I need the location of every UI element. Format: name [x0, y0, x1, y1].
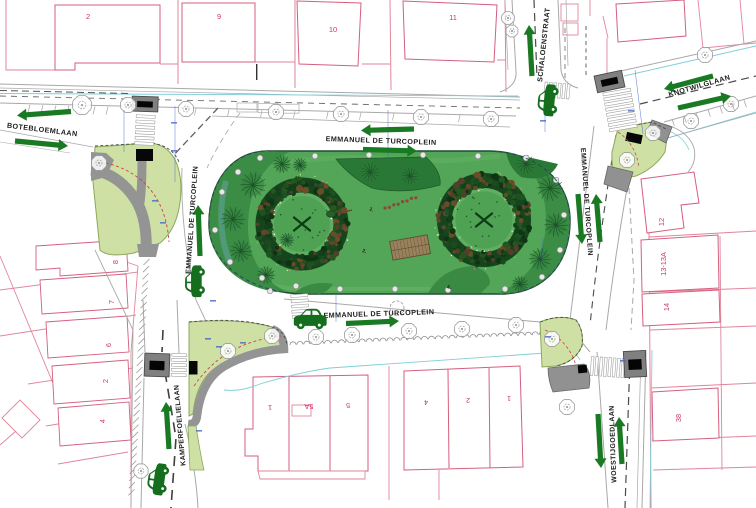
svg-text:4.: 4.	[447, 285, 452, 291]
svg-text:4: 4	[98, 419, 107, 423]
svg-text:6: 6	[104, 343, 113, 347]
svg-text:10: 10	[329, 25, 337, 34]
svg-text:9: 9	[217, 12, 221, 21]
svg-text:1: 1	[507, 394, 511, 403]
svg-text:2: 2	[101, 379, 110, 383]
svg-text:2: 2	[466, 396, 470, 405]
svg-text:14: 14	[662, 303, 671, 311]
svg-text:4: 4	[424, 398, 428, 407]
svg-text:38: 38	[674, 414, 683, 422]
svg-text:5A: 5A	[304, 402, 313, 411]
svg-text:7: 7	[107, 300, 116, 304]
svg-text:8: 8	[111, 260, 120, 264]
svg-text:1: 1	[268, 403, 272, 412]
svg-text:5: 5	[346, 401, 350, 410]
svg-text:12: 12	[657, 218, 666, 226]
svg-text:11: 11	[449, 13, 457, 22]
svg-text:2: 2	[86, 12, 90, 21]
svg-text:13-13A: 13-13A	[659, 252, 668, 276]
